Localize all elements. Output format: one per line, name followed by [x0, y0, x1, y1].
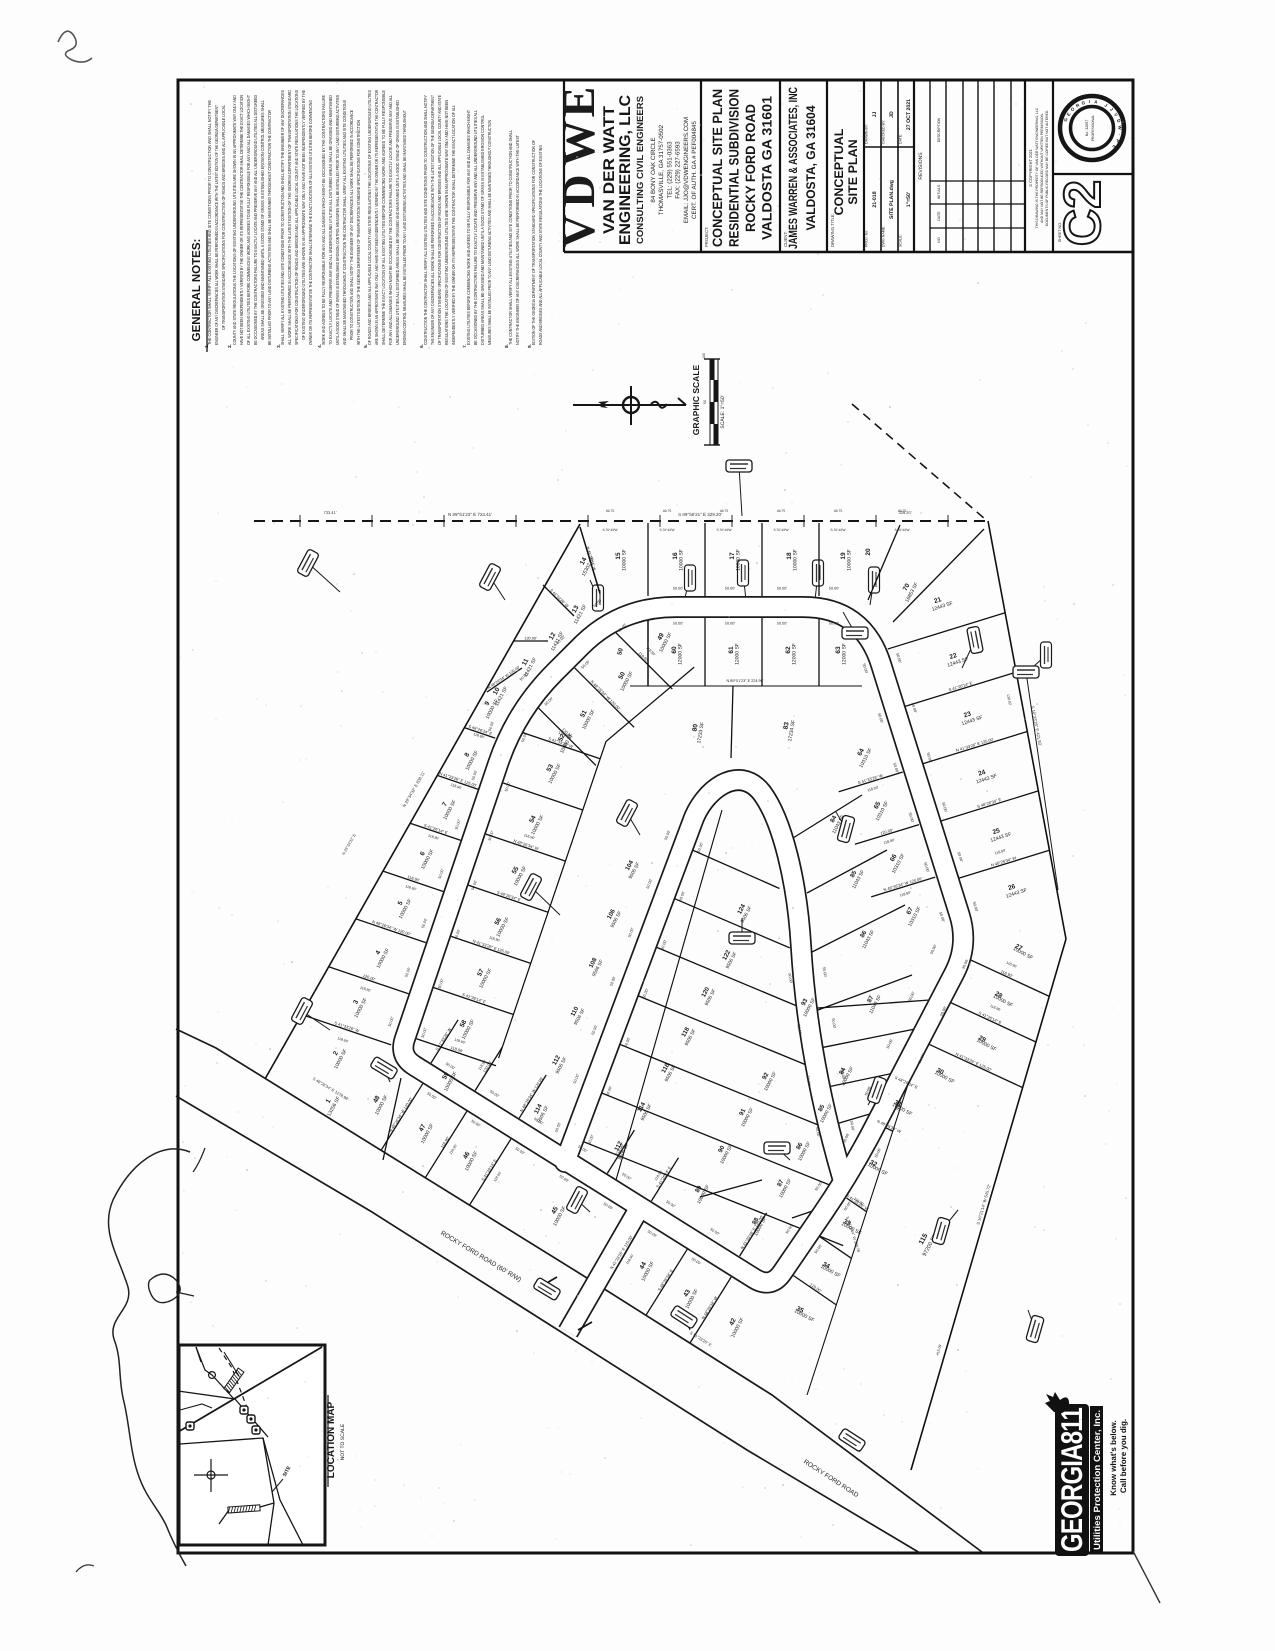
svg-text:THE CONTRACTOR SHALL VERIFY AL: THE CONTRACTOR SHALL VERIFY ALL EXISTING… — [508, 129, 513, 345]
svg-text:SCALE: 1"=50': SCALE: 1"=50' — [720, 395, 726, 428]
svg-text:OF ALL EXISTING UTILITIES BEFO: OF ALL EXISTING UTILITIES BEFORE COMMENC… — [246, 95, 251, 345]
svg-text:GENERAL NOTES:: GENERAL NOTES: — [191, 239, 203, 342]
svg-text:1.: 1. — [204, 344, 209, 348]
svg-text:49.75: 49.75 — [834, 509, 843, 513]
svg-text:OF TRANSPORTATION STANDARD SPE: OF TRANSPORTATION STANDARD SPECIFICATION… — [437, 95, 442, 345]
svg-text:SCALE:: SCALE: — [899, 234, 903, 247]
svg-text:C2: C2 — [1054, 180, 1112, 246]
svg-text:GEORGIA811: GEORGIA811 — [1056, 1408, 1089, 1552]
svg-text:ALL WORK SHALL BE PERFORMED IN: ALL WORK SHALL BE PERFORMED IN ACCORDANC… — [287, 90, 292, 345]
svg-text:CONSULTING CIVIL ENGINEERS: CONSULTING CIVIL ENGINEERS — [635, 96, 645, 244]
svg-text:No. 32657: No. 32657 — [1085, 120, 1089, 137]
svg-text:10000 SF: 10000 SF — [679, 549, 685, 571]
svg-text:WORK AND AGREES TO BE FULLY RE: WORK AND AGREES TO BE FULLY RESPONSIBLE … — [321, 95, 326, 345]
svg-text:PRIOR TO CONSTRUCTION AND SHAL: PRIOR TO CONSTRUCTION AND SHALL NOTIFY T… — [349, 110, 354, 340]
svg-text:12000 SF: 12000 SF — [678, 643, 684, 665]
svg-text:120.00': 120.00' — [524, 637, 537, 641]
svg-text:49.75: 49.75 — [606, 509, 615, 513]
svg-text:V: V — [553, 214, 604, 247]
svg-text:DRAWING TITLE:: DRAWING TITLE: — [830, 213, 835, 247]
svg-text:OF EXISTING UNDERGROUND UTILIT: OF EXISTING UNDERGROUND UTILITIES ARE SH… — [301, 90, 306, 340]
svg-text:50.00': 50.00' — [725, 622, 736, 626]
svg-text:4.: 4. — [317, 344, 322, 348]
svg-text:N 89°51'23" E 224.96': N 89°51'23" E 224.96' — [726, 679, 763, 683]
svg-text:EXISTING UTILITIES BEFORE COMM: EXISTING UTILITIES BEFORE COMMENCING WOR… — [466, 110, 471, 345]
svg-text:84 BONY OAK CIRCLE: 84 BONY OAK CIRCLE — [650, 137, 657, 202]
svg-text:20: 20 — [865, 548, 872, 556]
svg-text:FOR ANY AND ALL DAMAGES WHICH: FOR ANY AND ALL DAMAGES WHICH MIGHT BE O… — [388, 95, 393, 345]
svg-text:50.00': 50.00' — [777, 587, 788, 591]
svg-text:AND SHALL BE MAINTAINED THROUG: AND SHALL BE MAINTAINED THROUGHOUT CONST… — [342, 100, 347, 345]
svg-text:REGULATIONS THE LOCATIONS OF E: REGULATIONS THE LOCATIONS OF EXISTING UN… — [444, 100, 449, 345]
svg-text:BE OCCASIONED BY THE CONTRACTO: BE OCCASIONED BY THE CONTRACTORS FAILURE… — [253, 95, 258, 345]
svg-text:21-018: 21-018 — [872, 191, 878, 207]
svg-text:BE INSTALLED PRIOR TO ANY LAND: BE INSTALLED PRIOR TO ANY LAND DISTURBIN… — [267, 110, 272, 345]
svg-text:3.: 3. — [276, 344, 281, 348]
svg-text:49.75: 49.75 — [777, 509, 786, 513]
svg-text:OWNER OR ITS REPRESENTATIVE TH: OWNER OR ITS REPRESENTATIVE THE CONTRACT… — [308, 99, 313, 345]
svg-text:SHALL DETERMINE THE EXACT LOCA: SHALL DETERMINE THE EXACT LOCATION OF AL… — [381, 90, 386, 345]
svg-text:FAX: (229) 227-6593: FAX: (229) 227-6593 — [675, 141, 682, 199]
svg-text:THIS DRAWING IS THE PROPERTY O: THIS DRAWING IS THE PROPERTY OF VAN DER … — [1035, 107, 1039, 228]
svg-text:S 89°58'21" E 329.20': S 89°58'21" E 329.20' — [678, 512, 722, 517]
svg-text:ROCKY FORD ROAD: ROCKY FORD ROAD — [743, 104, 758, 232]
svg-text:JAMES WARREN & ASSOCIATES, INC: JAMES WARREN & ASSOCIATES, INC — [786, 87, 800, 249]
svg-text:DRAWN BY:: DRAWN BY: — [865, 124, 869, 144]
svg-text:NOT TO SCALE: NOT TO SCALE — [340, 1423, 346, 1460]
svg-text:© COPYRIGHT 2021: © COPYRIGHT 2021 — [1028, 148, 1033, 187]
svg-text:D: D — [553, 174, 604, 207]
svg-text:AREAS SHALL BE GRASSED AND MAI: AREAS SHALL BE GRASSED AND MAINTAINED UN… — [260, 99, 265, 340]
svg-text:SITE PLAN.dwg: SITE PLAN.dwg — [889, 180, 895, 219]
svg-text:Know what's below.: Know what's below. — [1109, 1420, 1118, 1495]
svg-text:ROADS AND BRIDGES AND ALL APPL: ROADS AND BRIDGES AND ALL APPLICABLE LOC… — [538, 144, 543, 345]
svg-text:Utilities Protection Center, I: Utilities Protection Center, Inc. — [1092, 1410, 1102, 1550]
svg-text:PROJ. No:: PROJ. No: — [865, 230, 869, 247]
svg-text:CHECKED BY:: CHECKED BY: — [882, 120, 886, 144]
svg-text:TO EXACTLY LOCATE AND PRESERVE: TO EXACTLY LOCATE AND PRESERVE ANY AND A… — [328, 95, 333, 345]
svg-text:CONSTRUCTION THE CONTRACTOR SH: CONSTRUCTION THE CONTRACTOR SHALL VERIFY… — [423, 95, 428, 345]
svg-text:50.00': 50.00' — [777, 622, 788, 626]
svg-text:THOMASVILLE, GA 31757-0502: THOMASVILLE, GA 31757-0502 — [658, 124, 665, 215]
svg-text:S.76°43'W: S.76°43'W — [660, 528, 675, 532]
svg-text:AND MAY NOT BE REPRODUCED WITH: AND MAY NOT BE REPRODUCED WITHOUT WRITTE… — [1040, 113, 1044, 223]
svg-text:50.00': 50.00' — [725, 587, 736, 591]
svg-text:SHALL VERIFY ALL EXISTING UTIL: SHALL VERIFY ALL EXISTING UTILITIES AND … — [280, 90, 285, 345]
svg-text:E: E — [553, 87, 604, 118]
svg-text:2.: 2. — [227, 344, 232, 348]
svg-text:DWG NAME:: DWG NAME: — [882, 226, 886, 247]
svg-text:10000 SF: 10000 SF — [622, 549, 628, 571]
svg-text:N 89°51'23" E 733.41': N 89°51'23" E 733.41' — [448, 512, 492, 517]
svg-text:100: 100 — [702, 353, 706, 359]
svg-text:DESCRIPTION: DESCRIPTION — [937, 117, 941, 142]
svg-text:MEASURES SHALL BE INSTALLED PR: MEASURES SHALL BE INSTALLED PRIOR TO ANY… — [487, 120, 492, 345]
svg-text:ARE SHOWN IN AN APPROXIMATE WA: ARE SHOWN IN AN APPROXIMATE WAY ONLY AND… — [374, 90, 379, 345]
svg-text:7.: 7. — [462, 344, 467, 348]
svg-text:50: 50 — [703, 400, 707, 404]
svg-text:S.76°43'W: S.76°43'W — [717, 528, 732, 532]
svg-text:NOTIFY THE ENGINEER OF ANY DIS: NOTIFY THE ENGINEER OF ANY DISCREPANCIES… — [515, 135, 520, 345]
svg-text:12000 SF: 12000 SF — [842, 643, 848, 665]
svg-text:S.76°43'W: S.76°43'W — [831, 528, 846, 532]
svg-text:12000 SF: 12000 SF — [792, 643, 798, 665]
svg-text:6.: 6. — [419, 344, 424, 348]
svg-text:NO: NO — [937, 237, 941, 243]
svg-text:PROFESSIONAL: PROFESSIONAL — [1091, 115, 1095, 141]
svg-text:OF TRANSPORTATION STANDARD SPE: OF TRANSPORTATION STANDARD SPECIFICATION… — [221, 104, 226, 330]
svg-text:CERT. OF AUTH. GA # PEF004845: CERT. OF AUTH. GA # PEF004845 — [691, 121, 698, 219]
svg-text:8.: 8. — [504, 344, 509, 348]
svg-text:VALDOSTA GA 31601: VALDOSTA GA 31601 — [760, 95, 775, 240]
svg-text:DOCUMENTS OF PUBLIC RECORD MAY: DOCUMENTS OF PUBLIC RECORD MAY BE COPIED… — [1045, 110, 1049, 227]
svg-text:10000 SF: 10000 SF — [847, 549, 853, 571]
svg-text:27 OCT 2021: 27 OCT 2021 — [906, 99, 912, 130]
svg-text:50.00': 50.00' — [673, 622, 684, 626]
svg-text:RESIDENTIAL SUBDIVISION: RESIDENTIAL SUBDIVISION — [727, 89, 742, 247]
svg-text:VALDOSTA, GA 31604: VALDOSTA, GA 31604 — [804, 105, 818, 230]
svg-text:THE ENGINEER OF ANY DISCREPANC: THE ENGINEER OF ANY DISCREPANCIES ALL WO… — [430, 95, 435, 345]
svg-text:CONCEPTUAL SITE PLAN: CONCEPTUAL SITE PLAN — [710, 89, 725, 247]
svg-text:Call before you dig.: Call before you dig. — [1119, 1419, 1128, 1493]
svg-text:W: W — [553, 120, 604, 166]
svg-text:JD: JD — [889, 111, 895, 118]
svg-text:EROSION CONTROL MEASURES SHALL: EROSION CONTROL MEASURES SHALL BE INSTAL… — [402, 110, 407, 345]
svg-text:ENGINEERING, LLC: ENGINEERING, LLC — [617, 95, 634, 245]
svg-text:TEL: (229) 551-0363: TEL: (229) 551-0363 — [666, 141, 673, 199]
svg-text:OF ROADS AND BRIDGES AND ALL A: OF ROADS AND BRIDGES AND ALL APPLICABLE … — [367, 90, 372, 345]
svg-text:50.00': 50.00' — [829, 587, 840, 591]
svg-text:S.76°43'W: S.76°43'W — [603, 528, 618, 532]
svg-text:329.20': 329.20' — [899, 510, 912, 515]
svg-text:DATE:: DATE: — [899, 134, 903, 144]
svg-text:50.00': 50.00' — [829, 622, 840, 626]
svg-text:DISTURBED AREAS SHALL BE GRASS: DISTURBED AREAS SHALL BE GRASSED AND MAI… — [480, 114, 485, 345]
svg-text:REVISIONS: REVISIONS — [918, 152, 924, 180]
svg-text:SITE PLAN: SITE PLAN — [846, 139, 860, 204]
svg-text:S.76°43'W: S.76°43'W — [774, 528, 789, 532]
svg-text:5.: 5. — [363, 344, 368, 348]
svg-text:EMAIL: JJO@VDWENGINEERS.COM: EMAIL: JJO@VDWENGINEERS.COM — [683, 117, 690, 223]
svg-text:BE OCCASIONED BY THE CONTRACTO: BE OCCASIONED BY THE CONTRACTORS FAILURE… — [473, 109, 478, 345]
svg-text:EDITION OF THE GEORGIA DEPARTM: EDITION OF THE GEORGIA DEPARTMENT OF TRA… — [531, 140, 536, 345]
svg-text:VAN DER WATT: VAN DER WATT — [601, 105, 618, 234]
svg-text:INITIALS: INITIALS — [937, 184, 941, 199]
svg-text:10000 SF: 10000 SF — [736, 549, 742, 571]
svg-text:UNDERGROUND UTILITIES ALL DIST: UNDERGROUND UTILITIES ALL DISTURBED AREA… — [395, 100, 400, 345]
svg-text:49.75: 49.75 — [663, 509, 672, 513]
svg-text:12000 SF: 12000 SF — [735, 643, 741, 665]
svg-text:PROJECT:: PROJECT: — [704, 227, 709, 247]
svg-text:50.00': 50.00' — [673, 587, 684, 591]
svg-text:CONCEPTUAL: CONCEPTUAL — [832, 128, 846, 215]
svg-text:10000 SF: 10000 SF — [793, 549, 799, 571]
svg-text:1"=50': 1"=50' — [906, 192, 912, 207]
svg-text:COUNTY AND STATE REGULATIONS T: COUNTY AND STATE REGULATIONS THE LOCATIO… — [232, 95, 237, 345]
svg-text:9.: 9. — [527, 344, 532, 348]
svg-text:JJ: JJ — [872, 112, 878, 118]
svg-text:THE CONTRACTOR SHALL VERIFY AL: THE CONTRACTOR SHALL VERIFY ALL EXISTING… — [207, 100, 212, 345]
svg-text:HAVE NOT BEEN INDEPENDENTLY VE: HAVE NOT BEEN INDEPENDENTLY VERIFIED BY … — [239, 95, 244, 345]
svg-text:SPECIFICATIONS FOR CONSTRUCTIO: SPECIFICATIONS FOR CONSTRUCTION OF ROADS… — [294, 90, 299, 345]
svg-text:INDEPENDENTLY VERIFIED BY THE: INDEPENDENTLY VERIFIED BY THE OWNER OR I… — [451, 104, 456, 345]
svg-text:WITH THE LATEST EDITION OF THE: WITH THE LATEST EDITION OF THE GEORGIA D… — [356, 120, 361, 345]
svg-text:ENGINEER OF ANY DISCREPANCIES: ENGINEER OF ANY DISCREPANCIES ALL WORK S… — [214, 105, 219, 345]
svg-text:DATE: DATE — [937, 211, 941, 221]
svg-text:733.41': 733.41' — [324, 510, 337, 515]
svg-text:GRAPHIC SCALE: GRAPHIC SCALE — [691, 364, 701, 435]
svg-text:UNTIL A GOOD STAND OF GRASS IS: UNTIL A GOOD STAND OF GRASS IS ESTABLISH… — [335, 95, 340, 345]
